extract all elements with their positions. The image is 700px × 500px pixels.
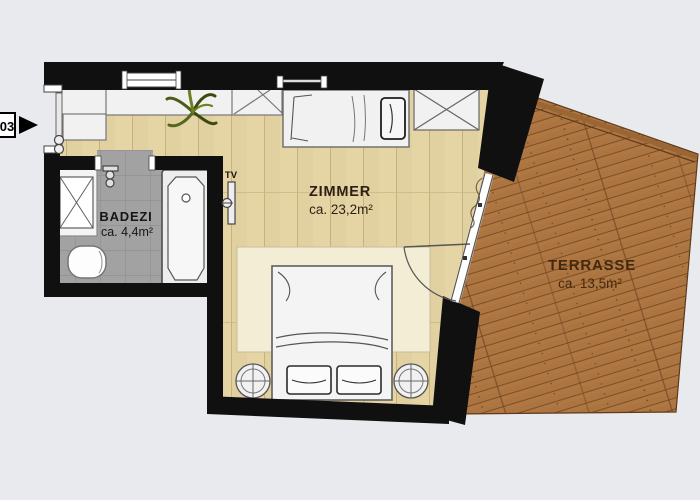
glass-mullion <box>478 203 482 207</box>
door-jamb-top <box>44 85 62 92</box>
room-label-zimmer: ZIMMER <box>309 184 371 200</box>
tv-label: TV <box>225 170 238 181</box>
room-area-badezimmer: ca. 4,4m² <box>101 225 153 239</box>
wall-left <box>44 150 60 297</box>
floor-plan-canvas: 03 ZIMMER ca. 23,2m² BADEZI ca. 4,4m² TE… <box>0 0 700 500</box>
glass-mullion <box>463 256 467 260</box>
wall-bathroom-top-right <box>153 156 222 170</box>
wardrobe-counter <box>60 88 282 115</box>
wall-bathroom-top-left <box>44 156 99 170</box>
floor-plan: 03 ZIMMER ca. 23,2m² BADEZI ca. 4,4m² TE… <box>0 0 700 500</box>
wall-bathroom-bottom <box>44 283 222 297</box>
door-hinge <box>55 145 64 154</box>
single-bed <box>283 90 409 147</box>
hall-window <box>122 71 181 89</box>
wall-divider <box>207 156 223 414</box>
wardrobe-x <box>414 89 479 130</box>
door-hinge <box>55 136 64 145</box>
room-label-badezimmer: BADEZI <box>99 209 152 224</box>
pillow <box>381 98 405 139</box>
bathtub <box>162 170 210 287</box>
toilet <box>68 246 106 278</box>
room-area-zimmer: ca. 23,2m² <box>309 202 373 217</box>
bath-door-jamb <box>149 156 155 170</box>
room-label-terrasse: TERRASSE <box>548 257 636 274</box>
wall-top <box>44 62 504 90</box>
bath-door-jamb <box>95 156 101 170</box>
room-area-terrasse: ca. 13,5m² <box>558 276 622 291</box>
bathtub-drain <box>182 194 190 202</box>
unit-number: 03 <box>0 119 14 134</box>
hall-table <box>63 114 106 140</box>
